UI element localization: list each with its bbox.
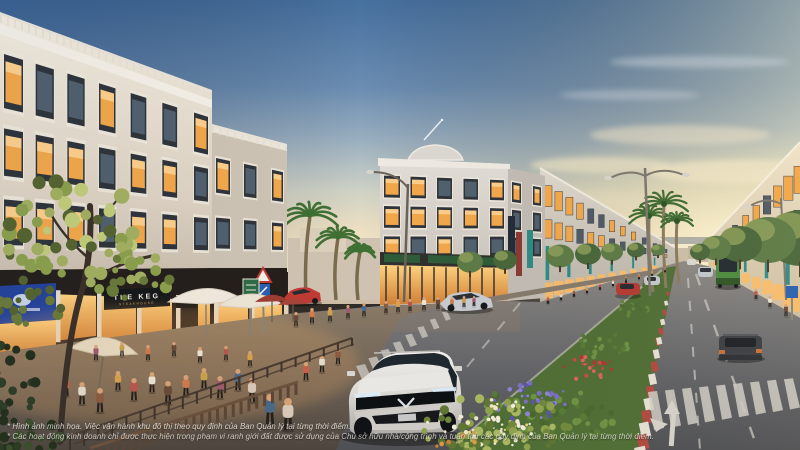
disclaimer-line-2: * Các hoạt động kinh doanh chỉ được thực… (7, 432, 797, 441)
street-render-scene: THE KEG STEAKHOUSE (0, 0, 800, 450)
disclaimer-line-1: * Hình ảnh minh họa. Việc vận hành khu đ… (7, 422, 797, 431)
render-canvas: THE KEG STEAKHOUSE (0, 0, 800, 450)
